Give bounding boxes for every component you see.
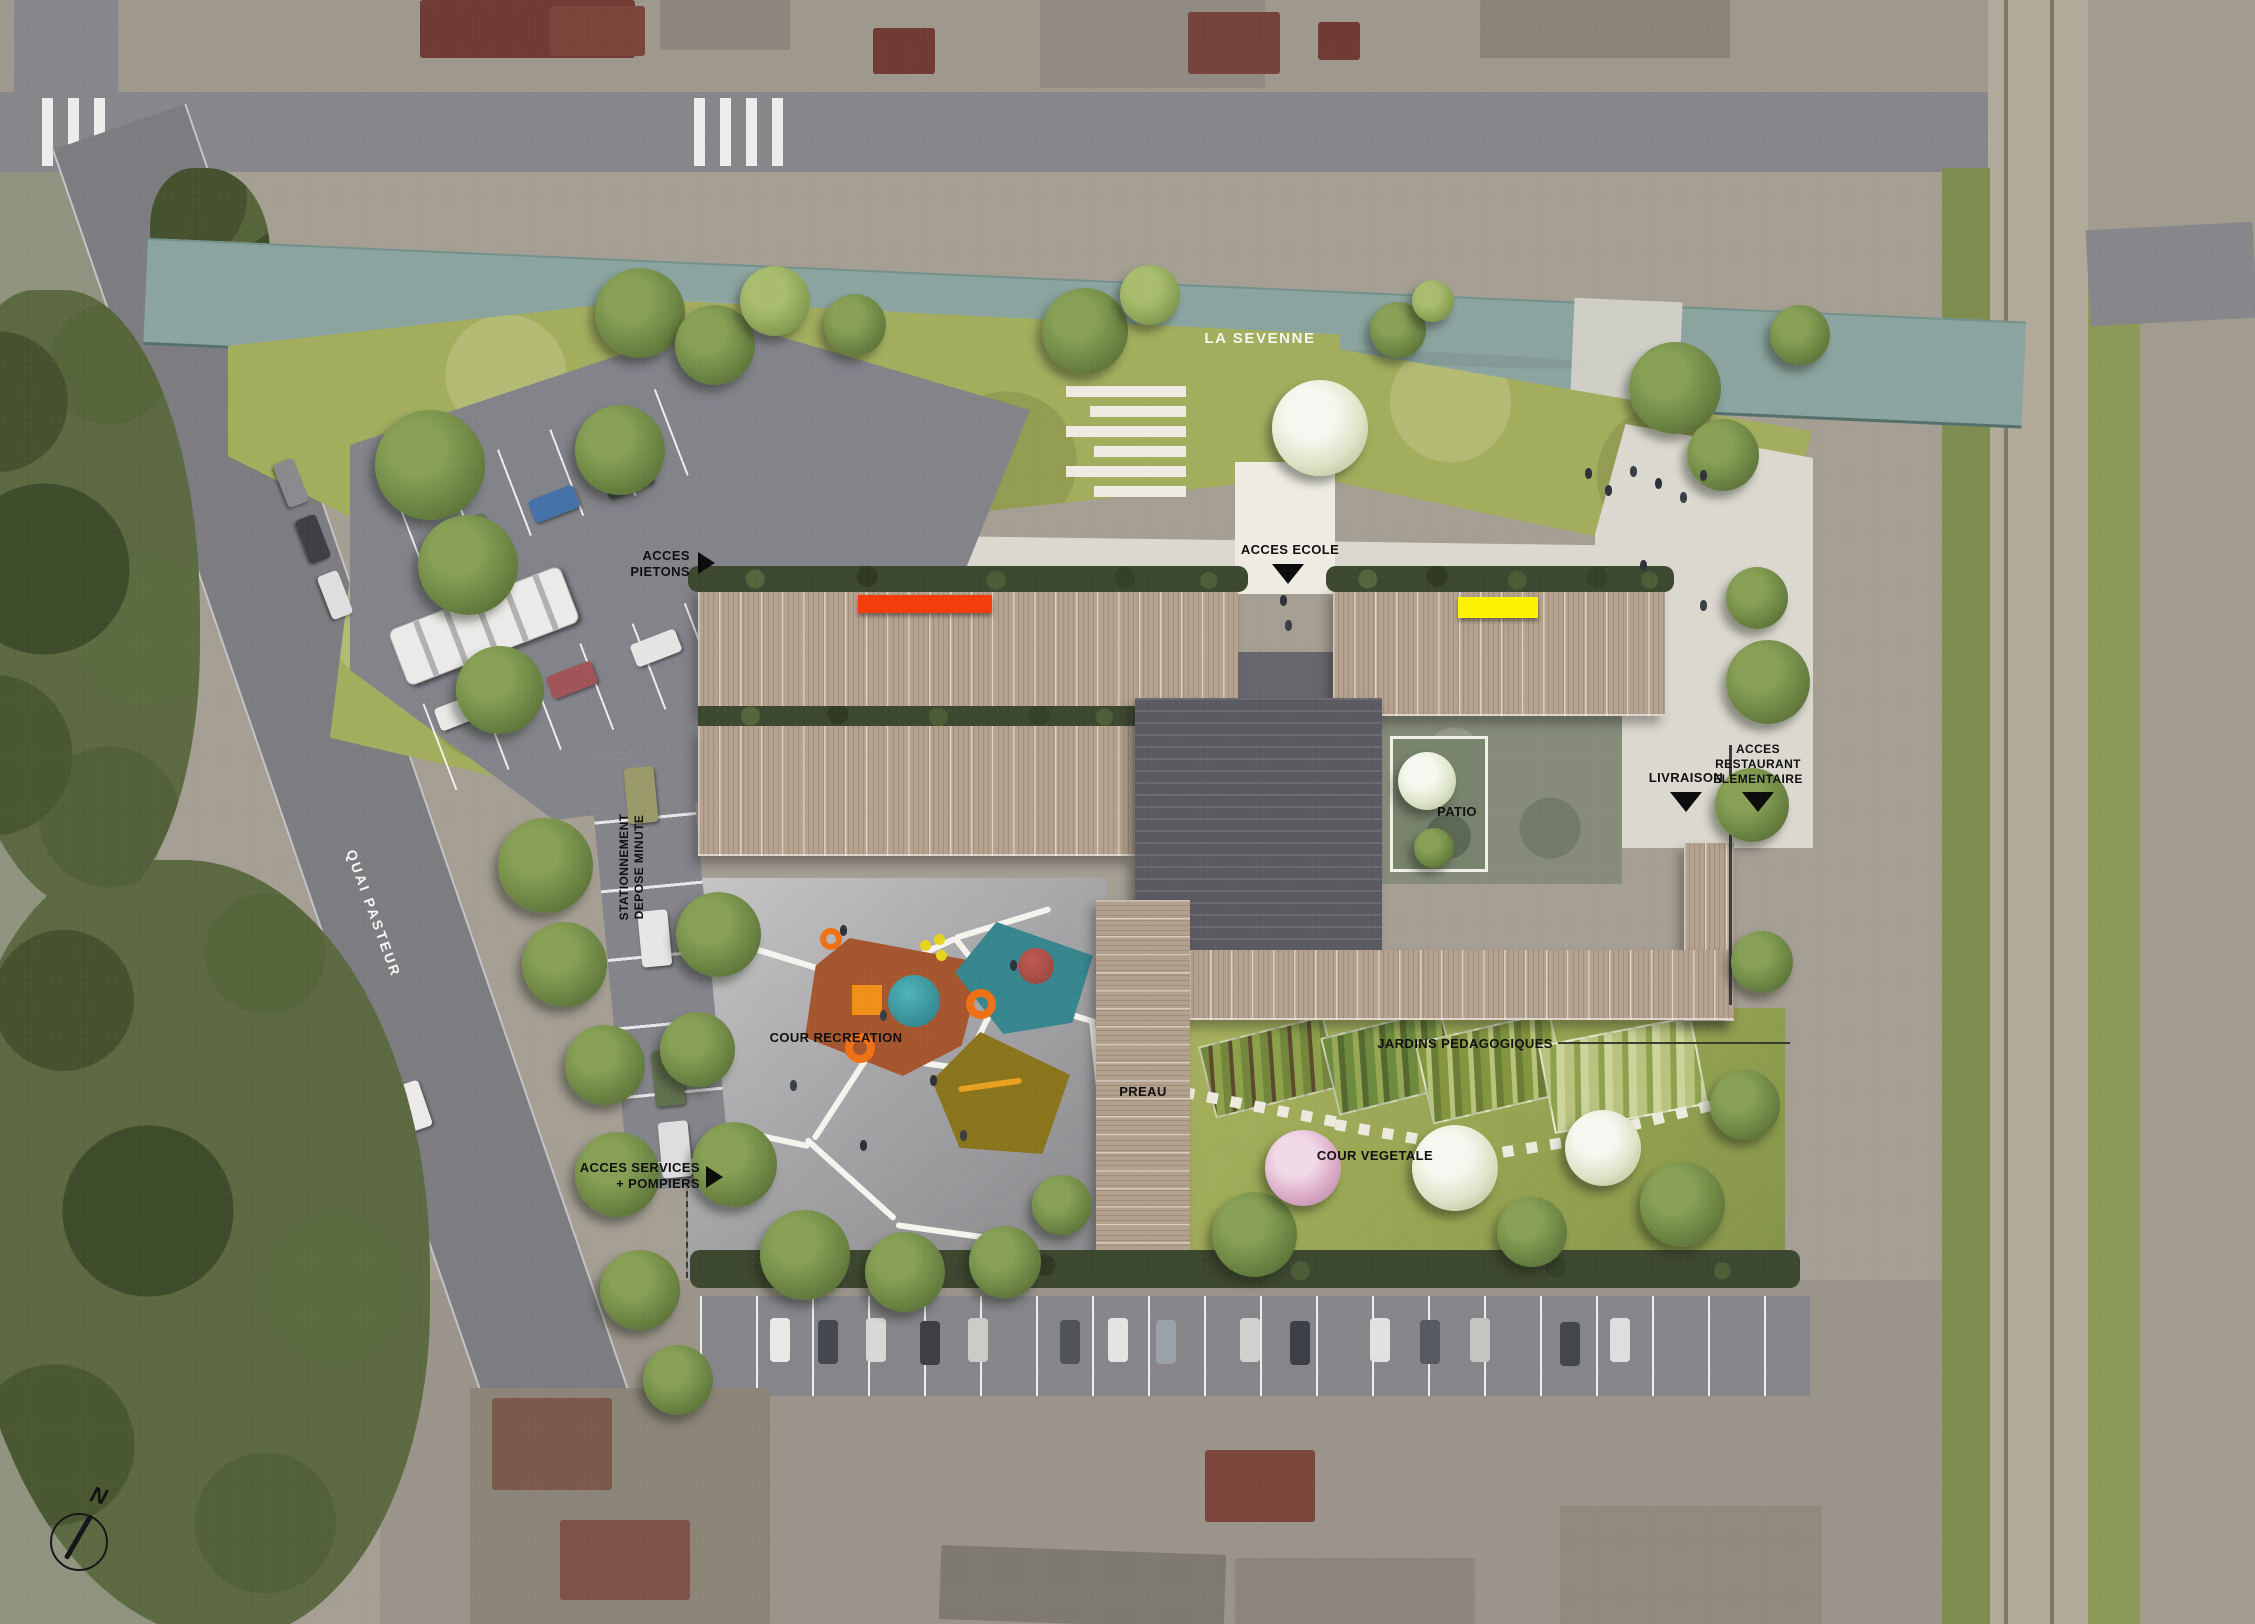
label-patio: PATIO [1417,804,1497,820]
river-steps [1094,446,1186,457]
building-roof-aerial [939,1545,1226,1624]
tree [865,1232,945,1312]
building-roof-aerial [660,0,790,50]
tree [375,410,485,520]
tree [1731,931,1793,993]
label-jardins: JARDINS PEDAGOGIQUES [1355,1036,1575,1052]
preau-covered-walk [1096,900,1190,1256]
railway-verge-east [2088,238,2140,1624]
acces-restaurant-arrow-icon [1742,792,1774,812]
play-equipment-dome [888,975,940,1027]
tree [1629,342,1721,434]
river-steps [1066,386,1186,397]
acces-pietons-arrow-icon [698,552,715,574]
building-roof-aerial [1480,0,1730,58]
label-acces-restaurant: ACCES RESTAURANT ELEMENTAIRE [1693,742,1823,787]
play-equipment-table [1018,948,1054,984]
tree [824,294,886,356]
tree [600,1250,680,1330]
tree [1497,1197,1567,1267]
acces-services-arrow-icon [706,1166,723,1188]
tree [456,646,544,734]
tree [660,1012,735,1087]
canopy-accent-red [858,595,992,613]
label-stationnement: STATIONNEMENT DEPOSE MINUTE [617,782,647,952]
tree [1710,1070,1780,1140]
tree [1687,419,1759,491]
building-roof-aerial [1560,1506,1822,1624]
jardins-leader-line [1558,1042,1790,1044]
tree [1726,567,1788,629]
play-dot-yellow [934,934,945,945]
school-roof-south-bar [1168,950,1733,1020]
building-roof-aerial [492,1398,612,1490]
label-acces-ecole: ACCES ECOLE [1215,542,1365,558]
building-roof-aerial [1188,12,1280,74]
patio-tree-green [1414,828,1454,868]
label-cour-recreation: COUR RECREATION [746,1030,926,1046]
tree [676,892,761,977]
play-dot-yellow [936,950,947,961]
parked-cars-row [770,1318,790,1362]
tree [575,405,665,495]
tree-flowering-white [1412,1125,1498,1211]
river-steps [1094,486,1186,497]
tree [595,268,685,358]
building-roof-aerial [560,1520,690,1600]
school-roof-second-bar [698,726,1135,856]
tree [760,1210,850,1300]
building-roof-aerial [873,28,935,74]
tree [1640,1162,1725,1247]
site-plan-canvas: LA SEVENNE [0,0,2255,1624]
livraison-arrow-icon [1670,792,1702,812]
label-acces-pietons: ACCES PIETONS [560,548,690,581]
label-cour-vegetale: COUR VEGETALE [1295,1148,1455,1164]
river-label: LA SEVENNE [1175,330,1345,349]
play-equipment-mat [852,985,882,1015]
tree [740,266,810,336]
tree-flowering-white [1565,1110,1641,1186]
play-dot-yellow [920,940,931,951]
canopy-accent-yellow [1458,597,1538,618]
tree [969,1226,1041,1298]
tree-flowering-white [1272,380,1368,476]
tree [565,1025,645,1105]
tree [1412,280,1454,322]
river-steps [1066,426,1186,437]
road-top-right [2086,222,2255,327]
road-top [0,92,2255,172]
label-acces-services: ACCES SERVICES + POMPIERS [560,1160,700,1193]
tree-flowering-pink [1265,1130,1341,1206]
play-ring [966,989,996,1019]
compass-rose [50,1513,108,1571]
river-steps [1090,406,1186,417]
crosswalk [694,98,794,166]
tree [418,515,518,615]
label-preau: PREAU [1103,1084,1183,1100]
patio-tree-white [1398,752,1456,810]
tree [1770,305,1830,365]
tree [1120,265,1180,325]
tree [1212,1192,1297,1277]
building-roof-aerial [1205,1450,1315,1522]
road-top-left-branch [14,0,118,100]
tree [1726,640,1810,724]
tree [498,818,593,913]
river-steps [1066,466,1186,477]
railway-corridor [1988,0,2088,1624]
hedge-north [688,566,1248,592]
hedge-roof-joint [698,706,1135,726]
building-roof-aerial [1318,22,1360,60]
tree [1032,1175,1092,1235]
hedge-north [1326,566,1674,592]
tree [643,1345,713,1415]
parking-row-south [700,1296,1810,1396]
tree [1042,288,1128,374]
tree [692,1122,777,1207]
people-dots [1585,468,1592,479]
acces-ecole-arrow-icon [1272,564,1304,584]
tree [522,922,607,1007]
building-roof-aerial [1235,1558,1475,1624]
building-roof-aerial [550,6,645,56]
play-ring [820,928,842,950]
